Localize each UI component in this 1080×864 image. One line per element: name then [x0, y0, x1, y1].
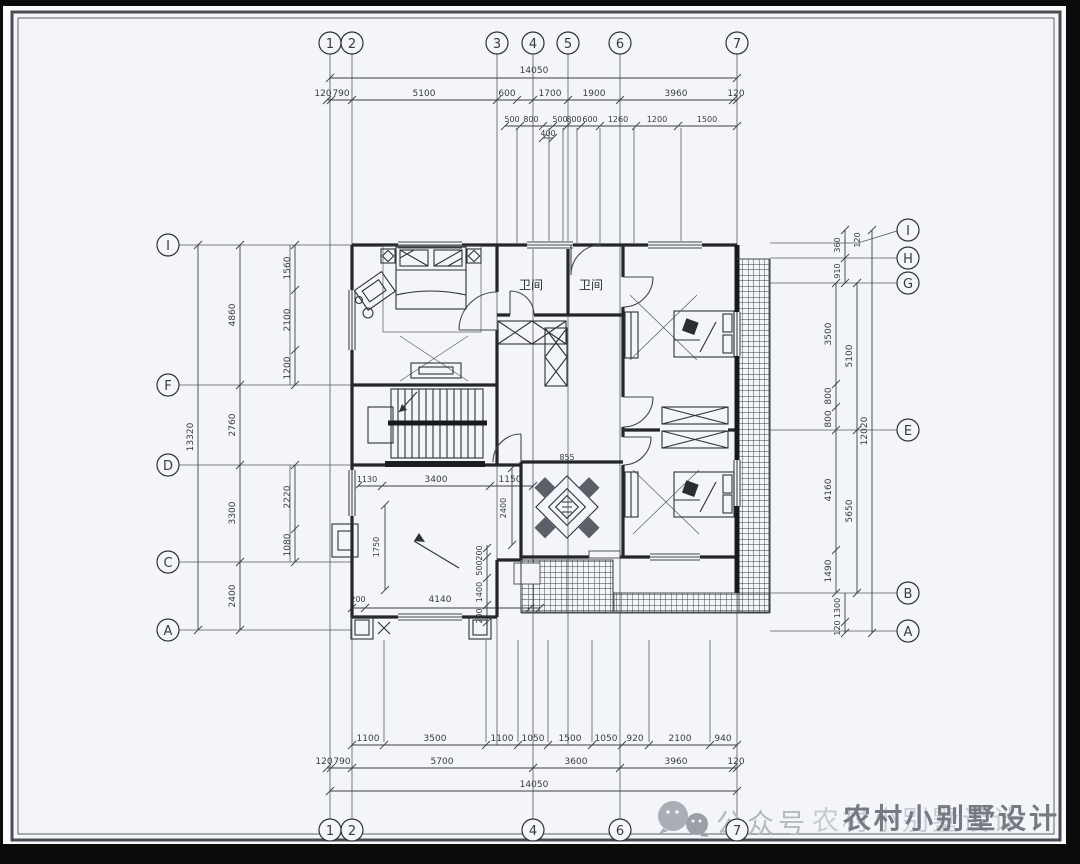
axis-label: 7 — [733, 824, 741, 839]
watermark-name: 农村小别墅设计 — [842, 802, 1060, 835]
dim-label: 3960 — [665, 89, 688, 99]
dim-label: 360 — [833, 237, 842, 252]
dim-label: 5100 — [845, 344, 855, 367]
dim-label: 3300 — [228, 501, 238, 524]
dim-label: 1400 — [475, 582, 484, 602]
photo-border-bottom — [0, 844, 1080, 864]
dim-label: 600 — [582, 115, 597, 124]
axis-label: I — [906, 224, 910, 239]
dim-label: 1100 — [357, 734, 380, 744]
dim-label: 940 — [714, 734, 731, 744]
dim-label: 2100 — [669, 734, 692, 744]
axis-label: 6 — [616, 824, 624, 839]
dim-label: 5650 — [845, 499, 855, 522]
dim-label: 4160 — [824, 478, 834, 501]
axis-label: H — [903, 252, 913, 267]
wall-stair-bar — [385, 461, 485, 467]
axis-label: F — [164, 379, 171, 394]
photo-border-right — [1066, 0, 1080, 864]
axis-label: 1 — [326, 824, 334, 839]
axis-label: 4 — [529, 37, 537, 52]
dim-label: 3500 — [424, 734, 447, 744]
dim-label: 1500 — [559, 734, 582, 744]
dim-label: 5100 — [413, 89, 436, 99]
window — [527, 241, 573, 249]
dim-label: 500 — [504, 115, 519, 124]
dim-label: 3960 — [665, 757, 688, 767]
dim-label: 120 — [833, 620, 842, 635]
dim-label: 1200 — [647, 115, 667, 124]
dim-label: 800 — [824, 410, 834, 427]
dim-label: 120 — [727, 89, 744, 99]
dim-label: 500 — [475, 560, 484, 575]
axis-label: A — [164, 624, 173, 639]
window — [348, 470, 356, 516]
dim-label: 2100 — [283, 308, 293, 331]
dim-label: 500 — [552, 115, 567, 124]
axis-label: A — [904, 625, 913, 640]
dim-label: 800 — [824, 387, 834, 404]
dim-label: 13320 — [186, 422, 196, 451]
dim-label: 1490 — [824, 559, 834, 582]
dim-label: 1500 — [697, 115, 717, 124]
dim-label: 800 — [566, 115, 581, 124]
axis-label: B — [904, 587, 913, 602]
dim-label: 1130 — [357, 475, 377, 484]
axis-label: D — [163, 459, 173, 474]
drawing-sheet: 14050 120 790 5100 600 1700 1900 3960 12… — [0, 0, 1080, 864]
axis-label: I — [166, 239, 170, 254]
dim-label: 120 — [853, 232, 862, 247]
dim-label: 1050 — [595, 734, 618, 744]
window — [398, 613, 462, 621]
dim-label: 4860 — [228, 303, 238, 326]
dim-label: 1260 — [608, 115, 628, 124]
axis-label: E — [904, 424, 912, 439]
dim-label: 3400 — [425, 475, 448, 485]
dim-label: 2220 — [283, 485, 293, 508]
dim-label: 1080 — [283, 533, 293, 556]
axis-label: 1 — [326, 37, 334, 52]
dim-label: 600 — [498, 89, 515, 99]
dim-label: 120 — [314, 89, 331, 99]
dim-label: 1700 — [539, 89, 562, 99]
axis-label: 2 — [348, 37, 356, 52]
dim-label: 1100 — [491, 734, 514, 744]
dim-label: 1900 — [583, 89, 606, 99]
dim-label: 910 — [833, 263, 842, 278]
dim-label: 3500 — [824, 322, 834, 345]
dim-label: 1560 — [283, 256, 293, 279]
axis-label: G — [903, 277, 913, 292]
axis-label: 2 — [348, 824, 356, 839]
room-label-bath1: 卫间 — [519, 278, 543, 292]
dim-label: 920 — [626, 734, 643, 744]
dim-label: 800 — [523, 115, 538, 124]
window — [650, 553, 700, 561]
dim-label: 12020 — [860, 416, 870, 445]
dim-label: 400 — [540, 129, 555, 138]
dim-label: 1200 — [283, 356, 293, 379]
room-label-bath2: 卫间 — [579, 278, 603, 292]
entry-sill — [589, 551, 620, 558]
dim-label: 5700 — [431, 757, 454, 767]
axis-label: 5 — [564, 37, 572, 52]
window — [348, 290, 356, 350]
axis-label: 4 — [529, 824, 537, 839]
photo-border-left — [0, 0, 3, 864]
terrace-step — [514, 563, 540, 584]
window — [648, 241, 702, 249]
dim-label: 120 — [315, 757, 332, 767]
dim-label: 2760 — [228, 413, 238, 436]
dim-label: 1050 — [522, 734, 545, 744]
dim-label: 14050 — [520, 66, 549, 76]
axis-label: 7 — [733, 37, 741, 52]
dim-label: 4140 — [429, 595, 452, 605]
dim-label: 200 — [475, 545, 484, 560]
dim-label: 14050 — [520, 780, 549, 790]
dim-label: 3600 — [565, 757, 588, 767]
axis-label: 3 — [493, 37, 501, 52]
dim-label: 2400 — [499, 498, 508, 518]
dim-label: 790 — [333, 757, 350, 767]
window — [398, 241, 462, 249]
dim-label: 790 — [332, 89, 349, 99]
photo-border-top — [0, 0, 1080, 6]
axis-label: C — [163, 556, 172, 571]
dim-label: 1300 — [833, 598, 842, 618]
dim-label: 2400 — [228, 584, 238, 607]
dim-label: 120 — [727, 757, 744, 767]
axis-label: 6 — [616, 37, 624, 52]
dim-label: 1750 — [372, 537, 381, 557]
dim-label: 1150 — [499, 475, 522, 485]
